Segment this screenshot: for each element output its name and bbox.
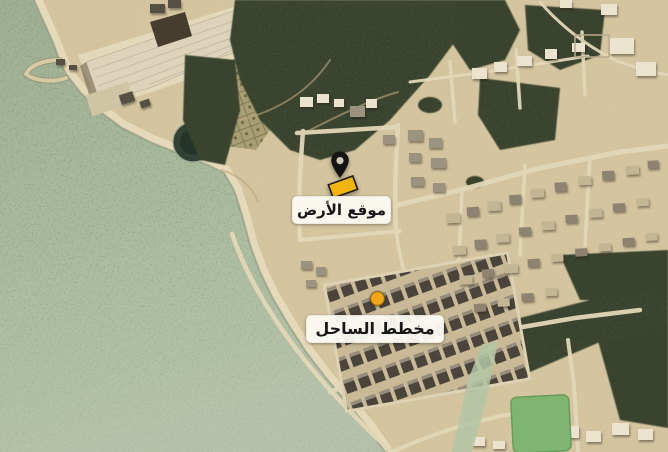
coast-plan-dot-icon[interactable] [371, 292, 385, 306]
pin-hole [336, 157, 343, 164]
satellite-map-image[interactable] [0, 0, 668, 452]
satellite-map-view[interactable]: موقع الأرض مخطط الساحل [0, 0, 668, 452]
coast-plan-label: مخطط الساحل [306, 315, 444, 343]
land-site-label-text: موقع الأرض [297, 203, 386, 218]
coast-plan-marker[interactable] [371, 292, 385, 306]
coast-plan-label-text: مخطط الساحل [315, 321, 434, 337]
land-site-label: موقع الأرض [292, 196, 391, 224]
